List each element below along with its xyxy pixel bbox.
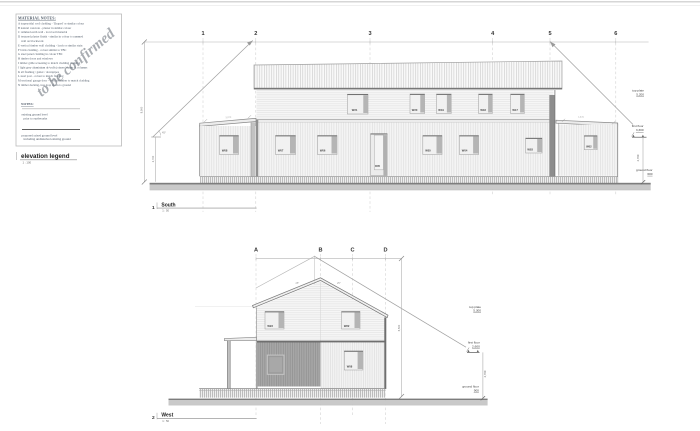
svg-text:3,300: 3,300 [636,128,644,132]
svg-text:5,200: 5,200 [636,92,644,96]
svg-text:1 : 100: 1 : 100 [23,161,32,165]
svg-text:2: 2 [254,31,257,37]
svg-text:W02: W02 [586,144,592,148]
svg-text:H timber doors and windows: H timber doors and windows [18,57,54,61]
svg-text:1: 1 [152,205,155,211]
svg-text:W05: W05 [425,148,431,152]
svg-text:45°: 45° [162,131,166,135]
svg-text:wall on blockwork: wall on blockwork [21,39,44,43]
svg-text:1 : 50: 1 : 50 [162,209,169,213]
svg-text:2,700: 2,700 [483,370,487,377]
svg-text:W03: W03 [527,147,533,151]
svg-text:G steel panel cladding in col: G steel panel cladding in colour TBC [18,52,63,56]
svg-text:W08: W08 [347,364,353,368]
svg-text:5,300: 5,300 [473,309,481,313]
svg-text:6: 6 [614,31,617,37]
svg-text:W19: W19 [438,108,444,112]
svg-text:West: West [161,413,173,419]
svg-text:W04: W04 [462,148,468,152]
svg-text:2,600: 2,600 [472,345,480,349]
svg-text:600: 600 [647,172,652,176]
svg-text:2: 2 [152,415,155,421]
svg-text:F brick cladding - colour sim: F brick cladding - colour similar to TBC [18,48,67,52]
svg-text:1: 1 [201,31,204,37]
svg-text:W08: W08 [222,148,228,152]
svg-text:W07: W07 [278,148,284,152]
svg-text:C rammed earth wall - local s: C rammed earth wall - local soil materia… [18,30,67,34]
svg-text:W06: W06 [320,148,326,152]
svg-text:3: 3 [368,31,371,37]
svg-text:B: B [318,248,322,254]
svg-text:including undisturbed existing: including undisturbed existing ground [24,137,72,141]
svg-text:D textured plaster finish - s: D textured plaster finish - similar in c… [18,35,84,39]
svg-text:5: 5 [548,31,551,37]
svg-text:25°: 25° [337,282,341,285]
svg-text:W17: W17 [512,108,518,112]
svg-text:C: C [350,248,354,254]
svg-text:South: South [161,202,175,208]
svg-text:D05: D05 [375,164,380,168]
svg-text:4,570: 4,570 [578,117,585,119]
svg-text:E vertical timber wall claddi: E vertical timber wall cladding - larch … [18,43,83,47]
svg-text:NOTES:: NOTES: [21,102,34,106]
svg-text:A trapezoidal roof cladding -: A trapezoidal roof cladding - 'Draped' o… [18,21,84,25]
svg-text:W22: W22 [344,324,350,328]
svg-text:25°: 25° [296,282,300,285]
svg-text:W23: W23 [267,324,273,328]
svg-text:2,700: 2,700 [636,154,640,161]
svg-text:W18: W18 [480,108,486,112]
svg-text:elevation legend: elevation legend [21,153,70,160]
svg-text:2,700: 2,700 [151,155,155,162]
svg-text:MATERIAL NOTES:: MATERIAL NOTES: [18,17,56,21]
svg-text:W21: W21 [352,108,358,112]
svg-text:1 : 50: 1 : 50 [162,419,169,423]
svg-text:W20: W20 [412,108,418,112]
svg-text:prior to earthworks: prior to earthworks [24,116,49,120]
svg-text:4: 4 [491,31,495,37]
svg-text:6,500: 6,500 [397,324,401,331]
svg-text:3,970: 3,970 [225,117,232,120]
svg-text:8,000: 8,000 [140,106,144,113]
svg-text:A: A [254,248,258,254]
svg-text:900: 900 [474,389,479,393]
svg-text:D: D [383,248,387,254]
svg-text:B natural concrete - plaster: B natural concrete - plaster in similar … [18,26,71,30]
